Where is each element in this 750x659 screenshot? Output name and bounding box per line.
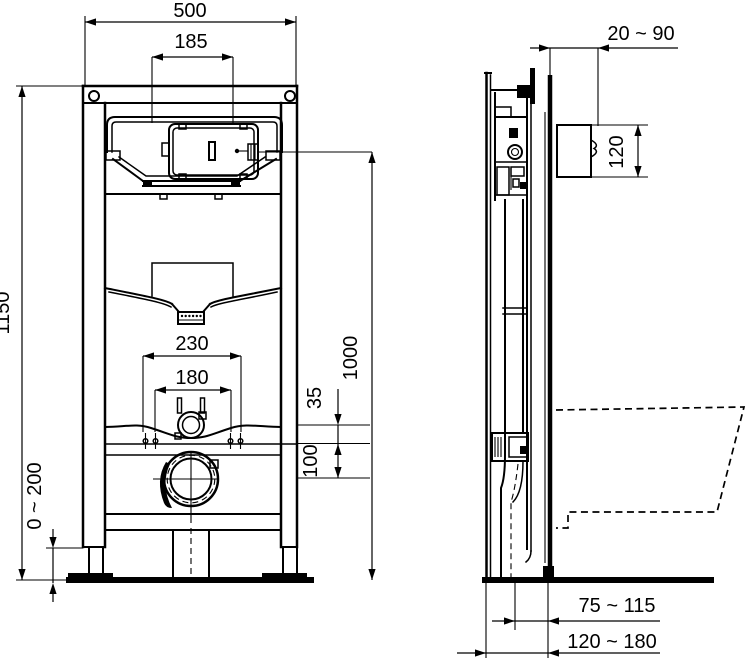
dim-bolt-spacing-inner: 180	[155, 367, 231, 432]
wall-bracket	[491, 68, 535, 117]
flush-bend-coupler	[178, 312, 204, 324]
cistern-body	[105, 194, 281, 324]
dim-bolt-to-outlet: 100	[297, 444, 370, 478]
dim-label-120-180: 120 ~ 180	[567, 631, 657, 653]
fill-valve	[508, 145, 522, 159]
toilet-bowl-outline	[556, 407, 744, 528]
bottom-crossbar	[105, 514, 281, 577]
dim-label-1000: 1000	[340, 336, 362, 381]
dim-label-cutout-width: 185	[174, 31, 207, 53]
plate-bracket	[248, 144, 258, 160]
dim-flush-plate-height: 1000	[258, 152, 376, 580]
corner-hole-right	[285, 91, 295, 101]
dim-label-35: 35	[304, 387, 326, 409]
dim-label-overall-width: 500	[173, 0, 206, 22]
floor-slab	[66, 577, 314, 583]
dim-label-100: 100	[300, 444, 322, 477]
flush-plate-side	[557, 125, 596, 177]
floor-slab-side	[482, 577, 714, 583]
dim-label-230: 230	[175, 333, 208, 355]
dim-label-75-115: 75 ~ 115	[579, 595, 656, 617]
dim-plate-opening-height: 120	[592, 125, 648, 177]
bolt-markers	[143, 433, 243, 449]
dim-label-120: 120	[606, 135, 628, 168]
rotation-flag	[160, 462, 172, 508]
corner-hole-left	[89, 91, 99, 101]
dim-flush-plate-cutout-width: 185	[152, 31, 233, 123]
dim-label-0-200: 0 ~ 200	[24, 462, 46, 529]
front-view: 500 185	[0, 0, 376, 602]
drain-outlet	[153, 451, 218, 523]
dim-plate-to-bolt: 35	[304, 387, 342, 444]
mounting-plate	[105, 398, 370, 455]
plate-pin	[235, 149, 239, 153]
dim-label-180: 180	[175, 367, 208, 389]
dim-label-20-90: 20 ~ 90	[607, 23, 674, 45]
installation-frame-drawing: 500 185	[0, 0, 750, 659]
plate-slot	[209, 142, 215, 160]
technical-drawing: 500 185	[0, 0, 750, 659]
dim-label-1150: 1150	[0, 291, 14, 334]
side-view: 20 ~ 90	[457, 23, 744, 658]
flush-pipe-side	[492, 200, 528, 577]
